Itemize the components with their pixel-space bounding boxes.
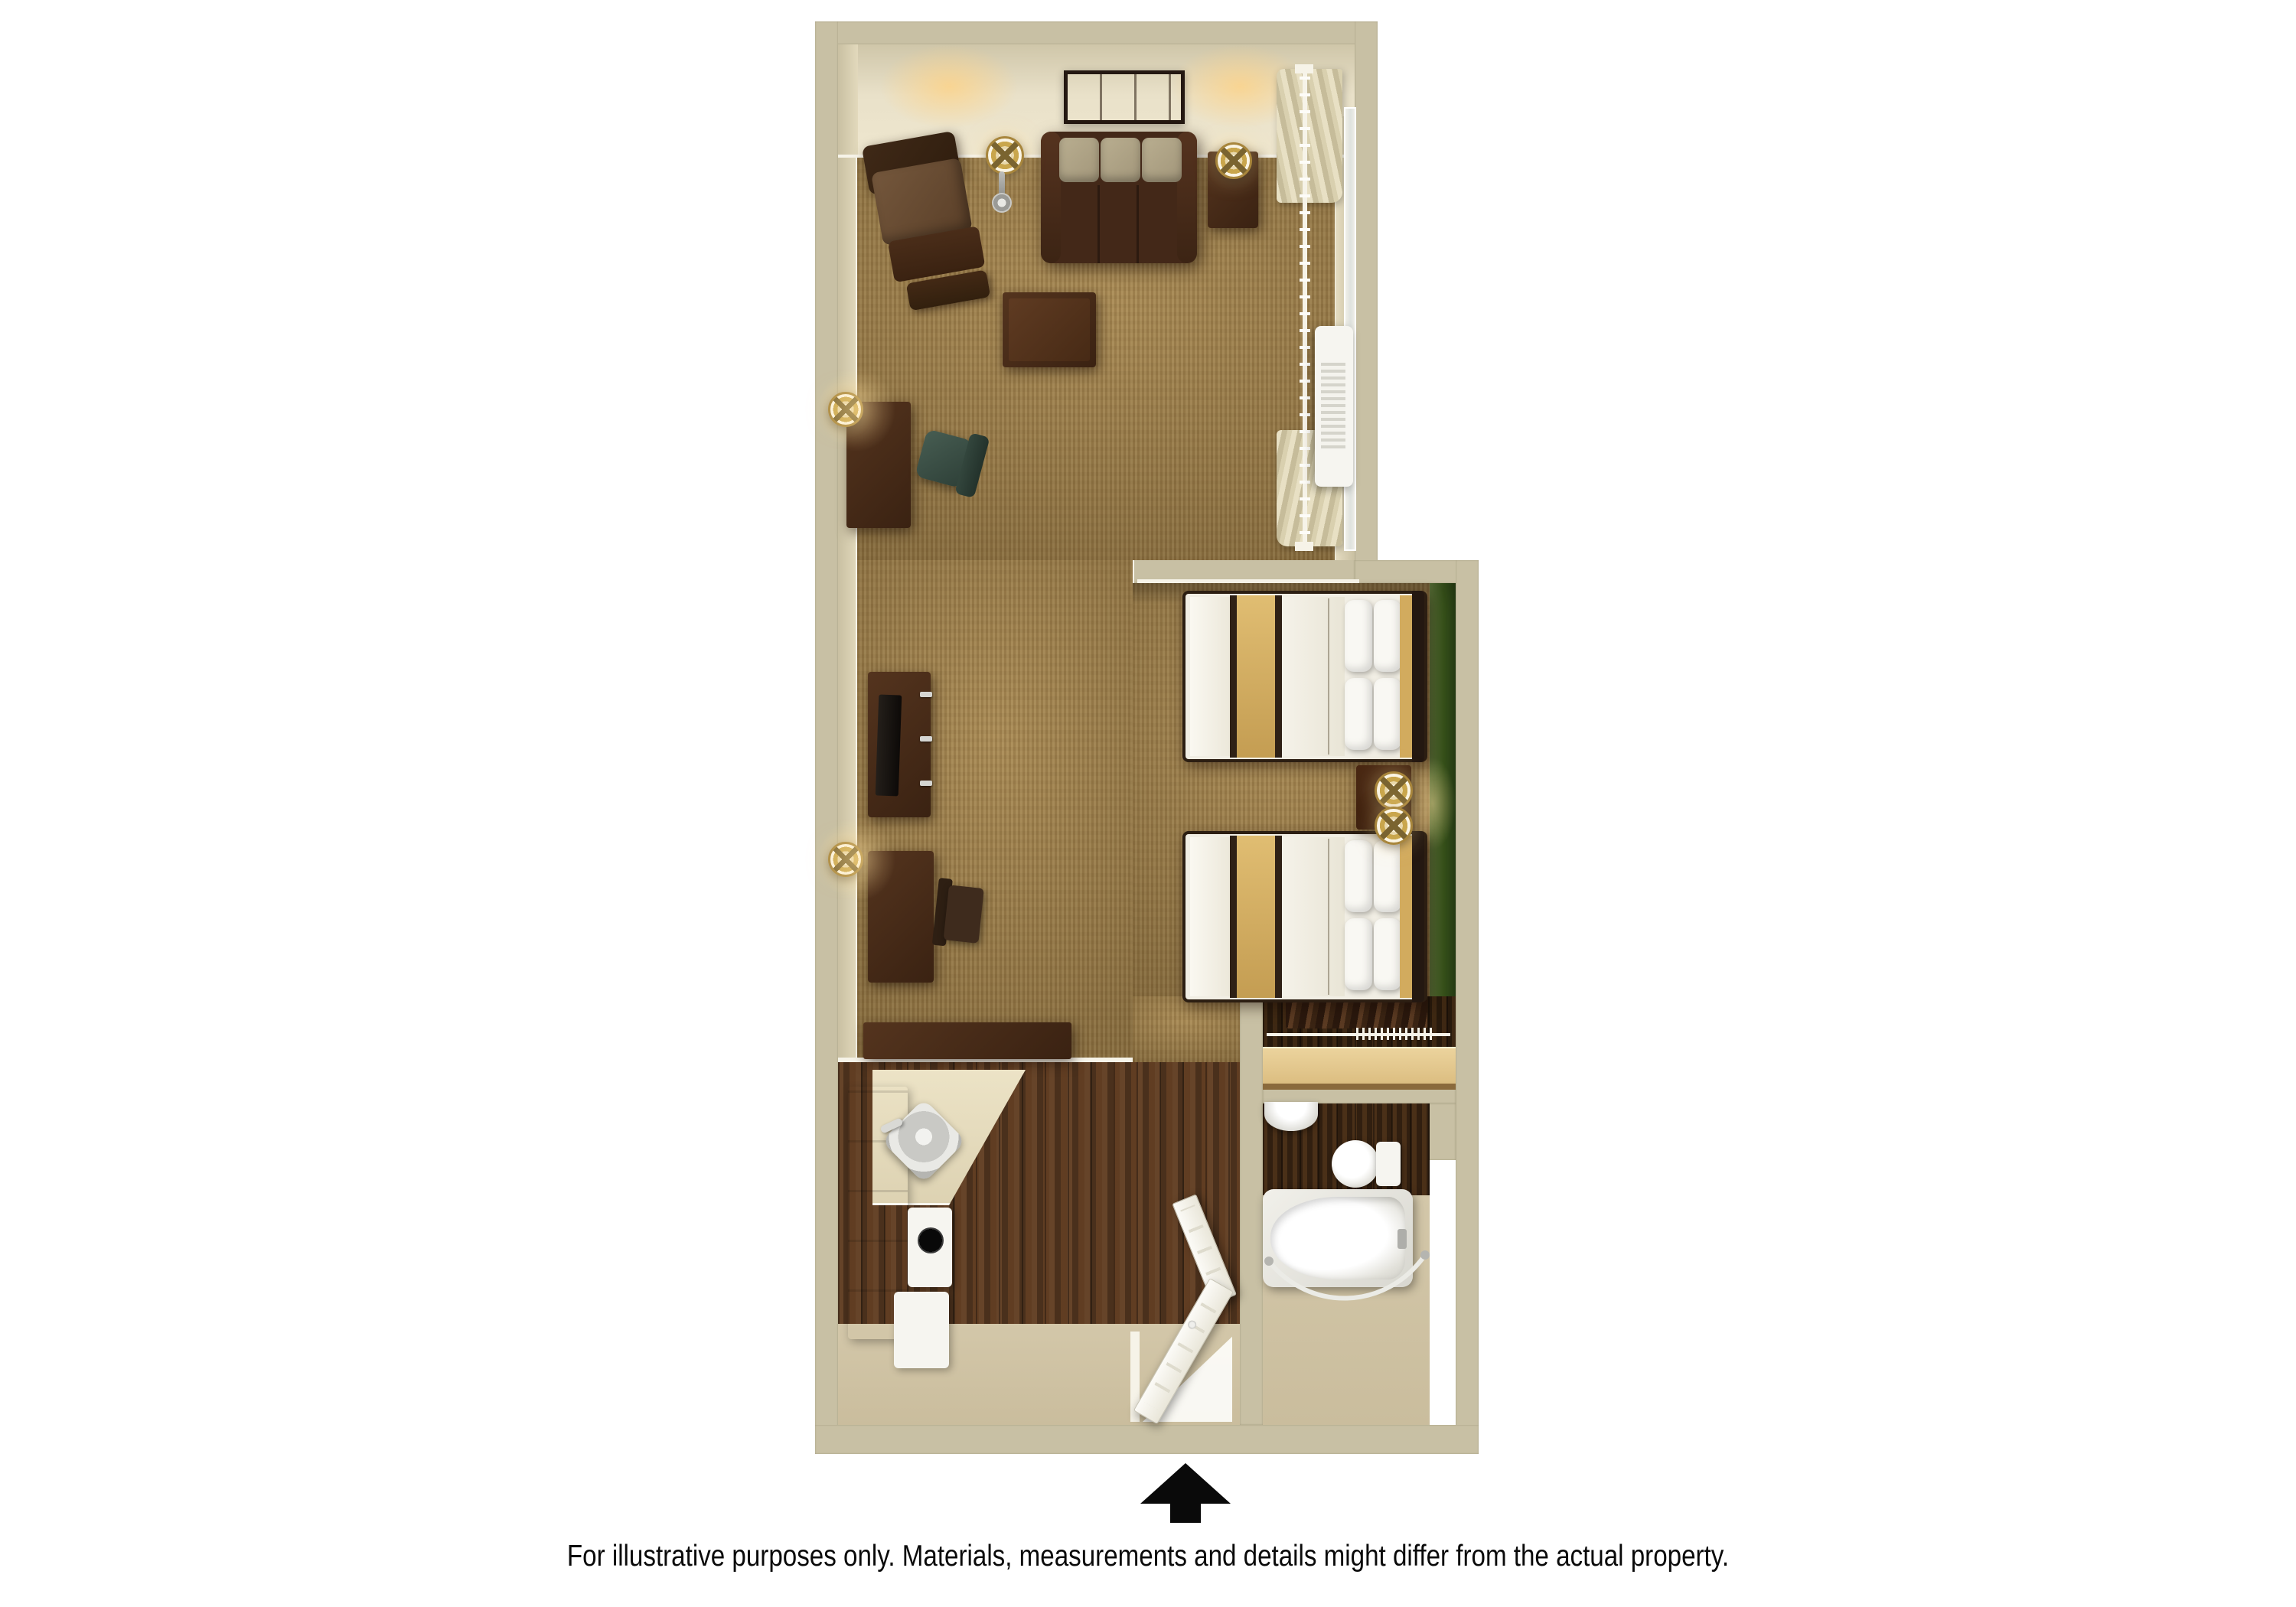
entry-door-knob	[1186, 1319, 1198, 1331]
bed-seam	[1328, 598, 1329, 755]
sofa-seat	[1061, 185, 1177, 263]
wall-light-glow	[880, 44, 1018, 129]
sofa-arm	[1041, 132, 1061, 263]
sofa	[1041, 132, 1197, 263]
table-lamp-icon	[1215, 142, 1252, 179]
bed-2	[1182, 831, 1427, 1002]
pillow	[1345, 600, 1372, 672]
drawer-handle	[920, 692, 932, 697]
wall-art	[1064, 70, 1185, 124]
headboard-panel	[1400, 836, 1412, 998]
side-chair	[931, 878, 986, 953]
divider-curtain-track	[1137, 579, 1359, 583]
bed-1	[1182, 591, 1427, 762]
ac-grille	[1321, 363, 1345, 448]
wall-right-lower	[1456, 560, 1479, 1454]
closet-approach-floor	[1133, 996, 1240, 1062]
pillow	[1345, 678, 1372, 750]
pillow	[1374, 678, 1401, 750]
bed-runner	[1237, 836, 1275, 998]
floor-lamp-icon	[986, 136, 1024, 174]
lower-cabinet	[894, 1292, 949, 1368]
toilet	[1332, 1139, 1402, 1191]
wall-bathroom-top	[1263, 1088, 1456, 1103]
television	[876, 695, 902, 797]
bed-seam	[1328, 839, 1329, 995]
pillow	[1374, 600, 1401, 672]
drawer-handle	[920, 736, 932, 742]
pillow	[1345, 918, 1372, 990]
coffee-table	[1003, 292, 1096, 367]
curtain-rod-bracket	[1295, 64, 1313, 73]
floor-plan: For illustrative purposes only. Material…	[0, 0, 2296, 1607]
pillow	[1374, 840, 1401, 912]
bed-trim	[1275, 836, 1282, 998]
shower-rod	[1261, 1241, 1433, 1321]
pillow	[1345, 840, 1372, 912]
wall-right-upper	[1355, 21, 1378, 583]
closet-shelf	[1263, 1047, 1456, 1090]
drawer-handle	[920, 781, 932, 786]
nightstand-lamp-icon	[1375, 771, 1413, 810]
wall-bottom	[815, 1425, 1479, 1454]
floor-lamp-base	[992, 193, 1012, 213]
side-chair-seat	[944, 885, 984, 943]
curtain-rod-rings	[1300, 77, 1310, 545]
headboard	[1412, 591, 1424, 762]
wall-bathroom-left	[1240, 992, 1263, 1425]
coffee-table-top	[1009, 298, 1090, 361]
bed-blanket	[1282, 837, 1345, 996]
nightstand-lamp-icon	[1375, 807, 1413, 845]
sofa-cushion	[1101, 138, 1140, 182]
bed-trim	[1230, 595, 1237, 758]
bed-blanket	[1282, 597, 1345, 756]
closet-rod-hangers	[1356, 1028, 1436, 1040]
bed-sheet	[1190, 837, 1230, 996]
appliance-door	[918, 1227, 944, 1253]
entry-direction-arrow-icon	[1140, 1463, 1231, 1523]
disclaimer-text: For illustrative purposes only. Material…	[172, 1540, 2124, 1573]
credenza	[863, 1022, 1071, 1059]
sofa-cushion	[1059, 138, 1099, 182]
bed-trim	[1230, 836, 1237, 998]
curtain-rod-bracket	[1295, 542, 1313, 551]
wall-left	[815, 21, 838, 1454]
bed-trim	[1275, 595, 1282, 758]
tv-console	[868, 672, 931, 817]
pillow	[1374, 918, 1401, 990]
headboard	[1412, 831, 1424, 1002]
bed-runner	[1237, 595, 1275, 758]
wall-top	[815, 21, 1378, 44]
bed-sheet	[1190, 597, 1230, 756]
sofa-cushion	[1142, 138, 1182, 182]
desk-lamp-glow	[819, 817, 895, 901]
desk-lamp-glow	[819, 367, 895, 451]
ac-unit	[1315, 326, 1353, 487]
toilet-tank	[1376, 1142, 1401, 1186]
laundry-appliance	[908, 1208, 952, 1287]
toilet-bowl	[1332, 1140, 1379, 1188]
hanging-clothes	[1286, 999, 1427, 1028]
headboard-panel	[1400, 595, 1412, 758]
